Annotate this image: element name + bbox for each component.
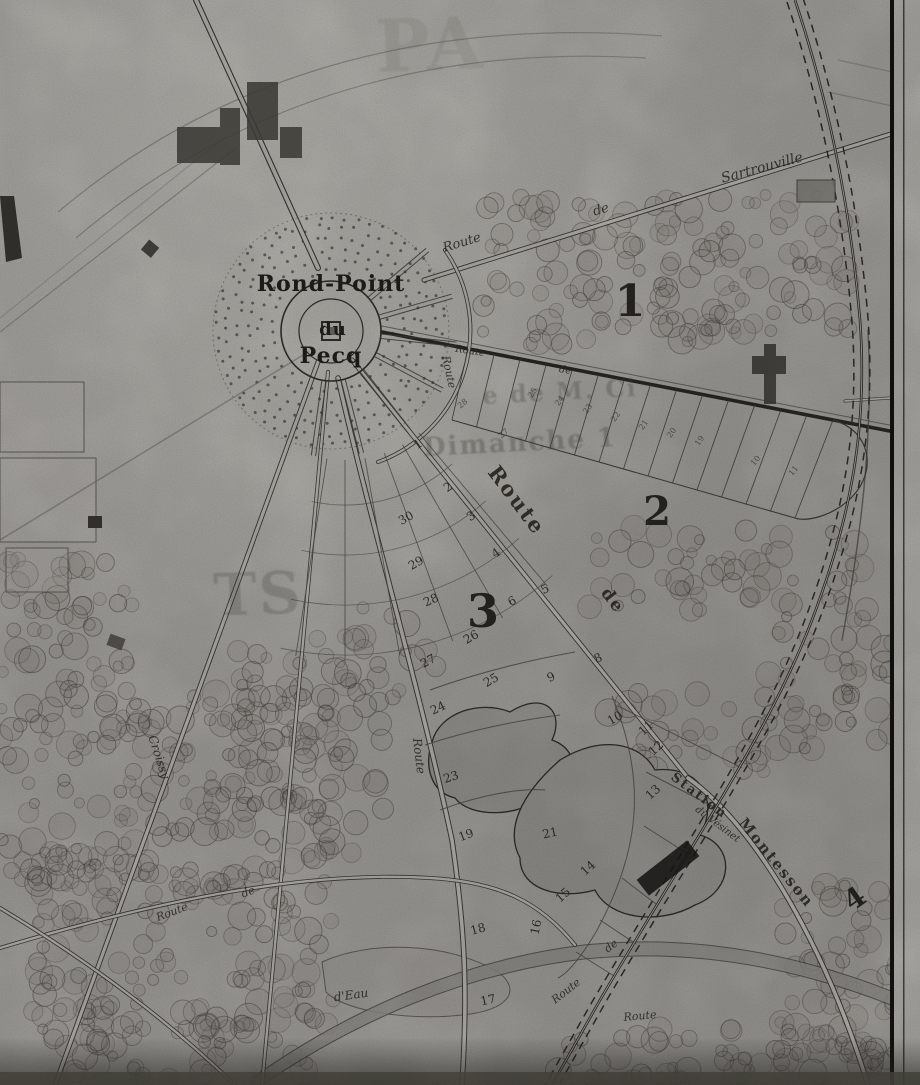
newsprint-ghost-text: e de M. Ci [482,376,639,408]
parcel-number: 23 [442,769,460,785]
parcel-number: 13 [643,782,662,801]
road-name-label: Route [454,345,485,360]
parcel-number: 4 [489,546,502,560]
fan-strip-number: 21 [638,419,650,432]
parcel-number: 24 [429,699,448,716]
fan-strip-number: 19 [694,435,706,448]
parcel-number: 30 [396,509,415,527]
parcel-number: 28 [422,591,441,608]
road-name-label: de [592,202,611,219]
historical-map-photo: Rond-PointduPecqRoutedeSartrouvilleRoute… [0,0,920,1085]
parcel-number: 14 [578,858,597,877]
parcel-number: 25 [481,671,500,689]
road-name-label: Route [440,355,458,389]
parcel-number: 29 [406,554,425,572]
fan-strip-number: 10 [750,455,763,468]
parcel-number: 18 [469,921,487,937]
road-name-label: Route [155,901,190,923]
road-name-label: Sartrouville [720,150,805,185]
parcel-number: 9 [545,670,557,684]
fan-strip-number: 20 [666,427,678,440]
parcel-number: 3 [464,509,477,523]
parcel-number: 19 [457,827,475,844]
road-name-label: Route [550,977,583,1006]
rond-point-label: Pecq [300,345,363,367]
road-name-label: Route [485,462,550,538]
parcel-number: 5 [539,582,551,596]
road-name-label: Route [623,1009,657,1023]
parcel-number: 6 [506,594,518,608]
rond-point-label: Rond-Point [257,273,406,295]
parcel-number: 17 [479,993,496,1008]
district-number: 1 [615,280,646,324]
road-name-label: de [240,884,257,899]
parcel-number: 10 [605,709,624,727]
parcel-number: 11 [636,718,655,737]
fan-strip-number: 11 [788,465,801,478]
map-labels-layer: Rond-PointduPecqRoutedeSartrouvilleRoute… [0,0,920,1085]
parcel-number: 21 [541,826,558,841]
district-number: 4 [839,882,871,916]
road-name-label: Route [411,737,427,774]
newsprint-ghost-text: PA [374,7,485,83]
parcel-number: 12 [646,738,665,757]
district-number: 2 [643,492,671,532]
road-name-label: Montesson [736,816,817,911]
parcel-number: 8 [592,651,604,665]
fan-strip-number: 28 [457,398,470,411]
parcel-number: 2 [441,480,454,494]
newsprint-ghost-text: Dimanche 1 [422,425,617,461]
parcel-number: 16 [529,918,544,935]
road-name-label: Route [441,231,482,255]
road-name-label: de [597,585,627,617]
road-name-label: de [602,937,619,954]
parcel-number: 27 [418,652,437,670]
road-name-label: Croissy [146,734,171,781]
fan-strip-number: 22 [610,411,622,424]
newsprint-ghost-text: TS [212,563,303,624]
rond-point-label: du [319,321,347,339]
parcel-number: 15 [553,885,572,904]
road-name-label: d'Eau [333,987,369,1004]
road-name-label: de [558,365,572,377]
